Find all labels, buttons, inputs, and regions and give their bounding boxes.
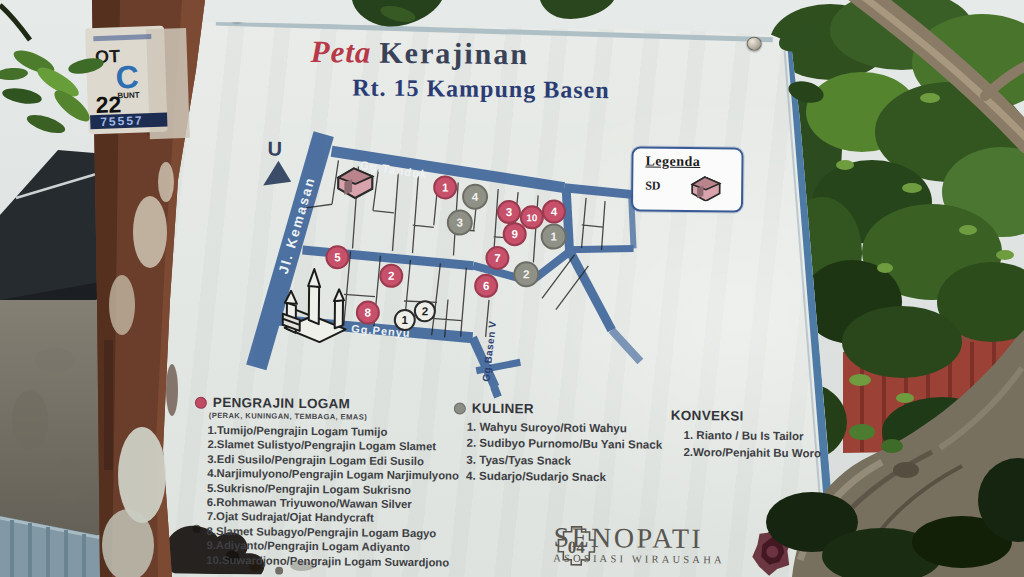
foreground-scenery: OT C BUNT 22 75557 xyxy=(0,0,1024,577)
tree-trunk xyxy=(766,330,1024,577)
sapling-leaves xyxy=(849,424,875,440)
svg-text:75557: 75557 xyxy=(100,113,144,129)
utility-pole: OT C BUNT 22 75557 xyxy=(85,0,205,577)
overhanging-leaves xyxy=(0,5,105,137)
pole-sticker: OT C BUNT 22 75557 xyxy=(85,25,190,141)
photo-scene: PetaKerajinan Rt. 15 Kampung Basen xyxy=(0,0,1024,577)
top-leaf-clusters xyxy=(352,0,826,106)
